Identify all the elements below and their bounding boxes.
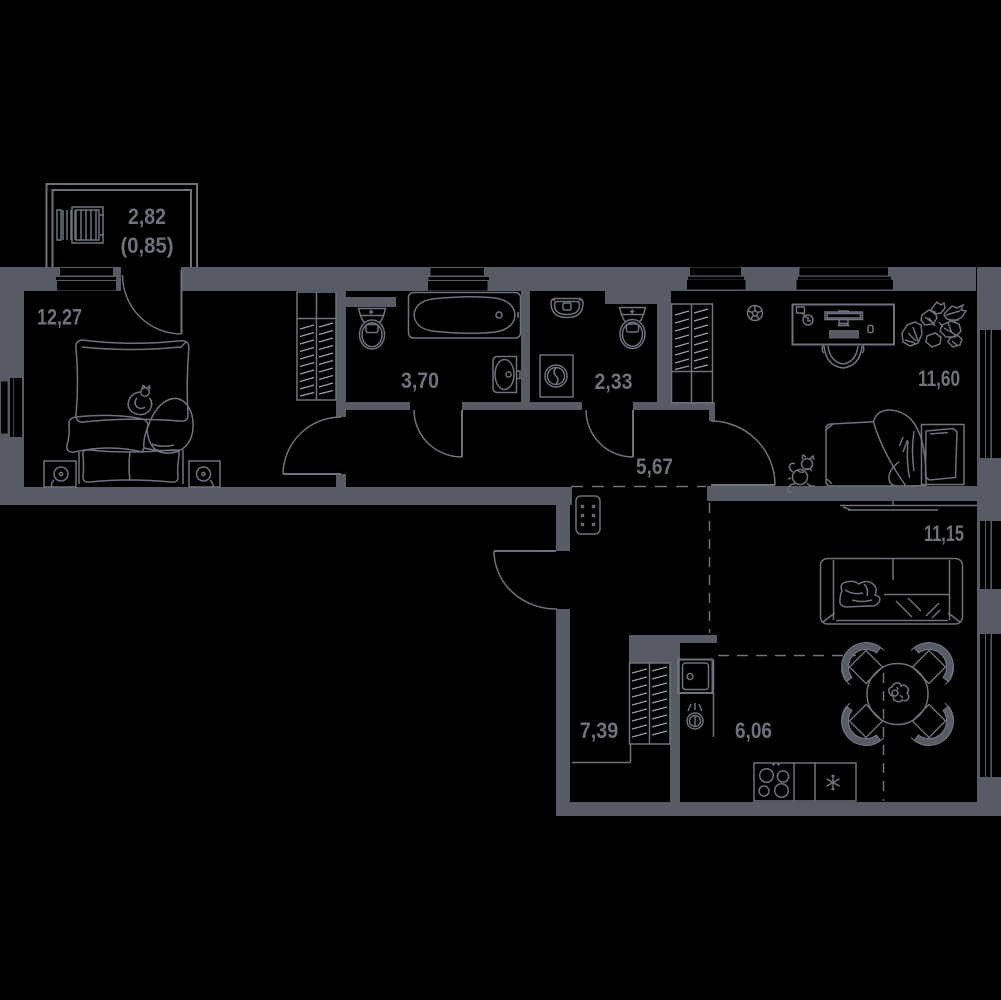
svg-text:12,27: 12,27 [37, 305, 82, 330]
svg-text:11,60: 11,60 [918, 366, 960, 391]
svg-text:2,33: 2,33 [595, 369, 633, 394]
svg-text:7,39: 7,39 [580, 718, 619, 743]
svg-text:6,06: 6,06 [735, 718, 772, 743]
svg-text:5,67: 5,67 [636, 454, 673, 479]
svg-text:11,15: 11,15 [924, 521, 964, 546]
svg-text:3,70: 3,70 [401, 368, 439, 393]
svg-text:(0,85): (0,85) [121, 233, 174, 258]
svg-text:2,82: 2,82 [128, 204, 166, 229]
